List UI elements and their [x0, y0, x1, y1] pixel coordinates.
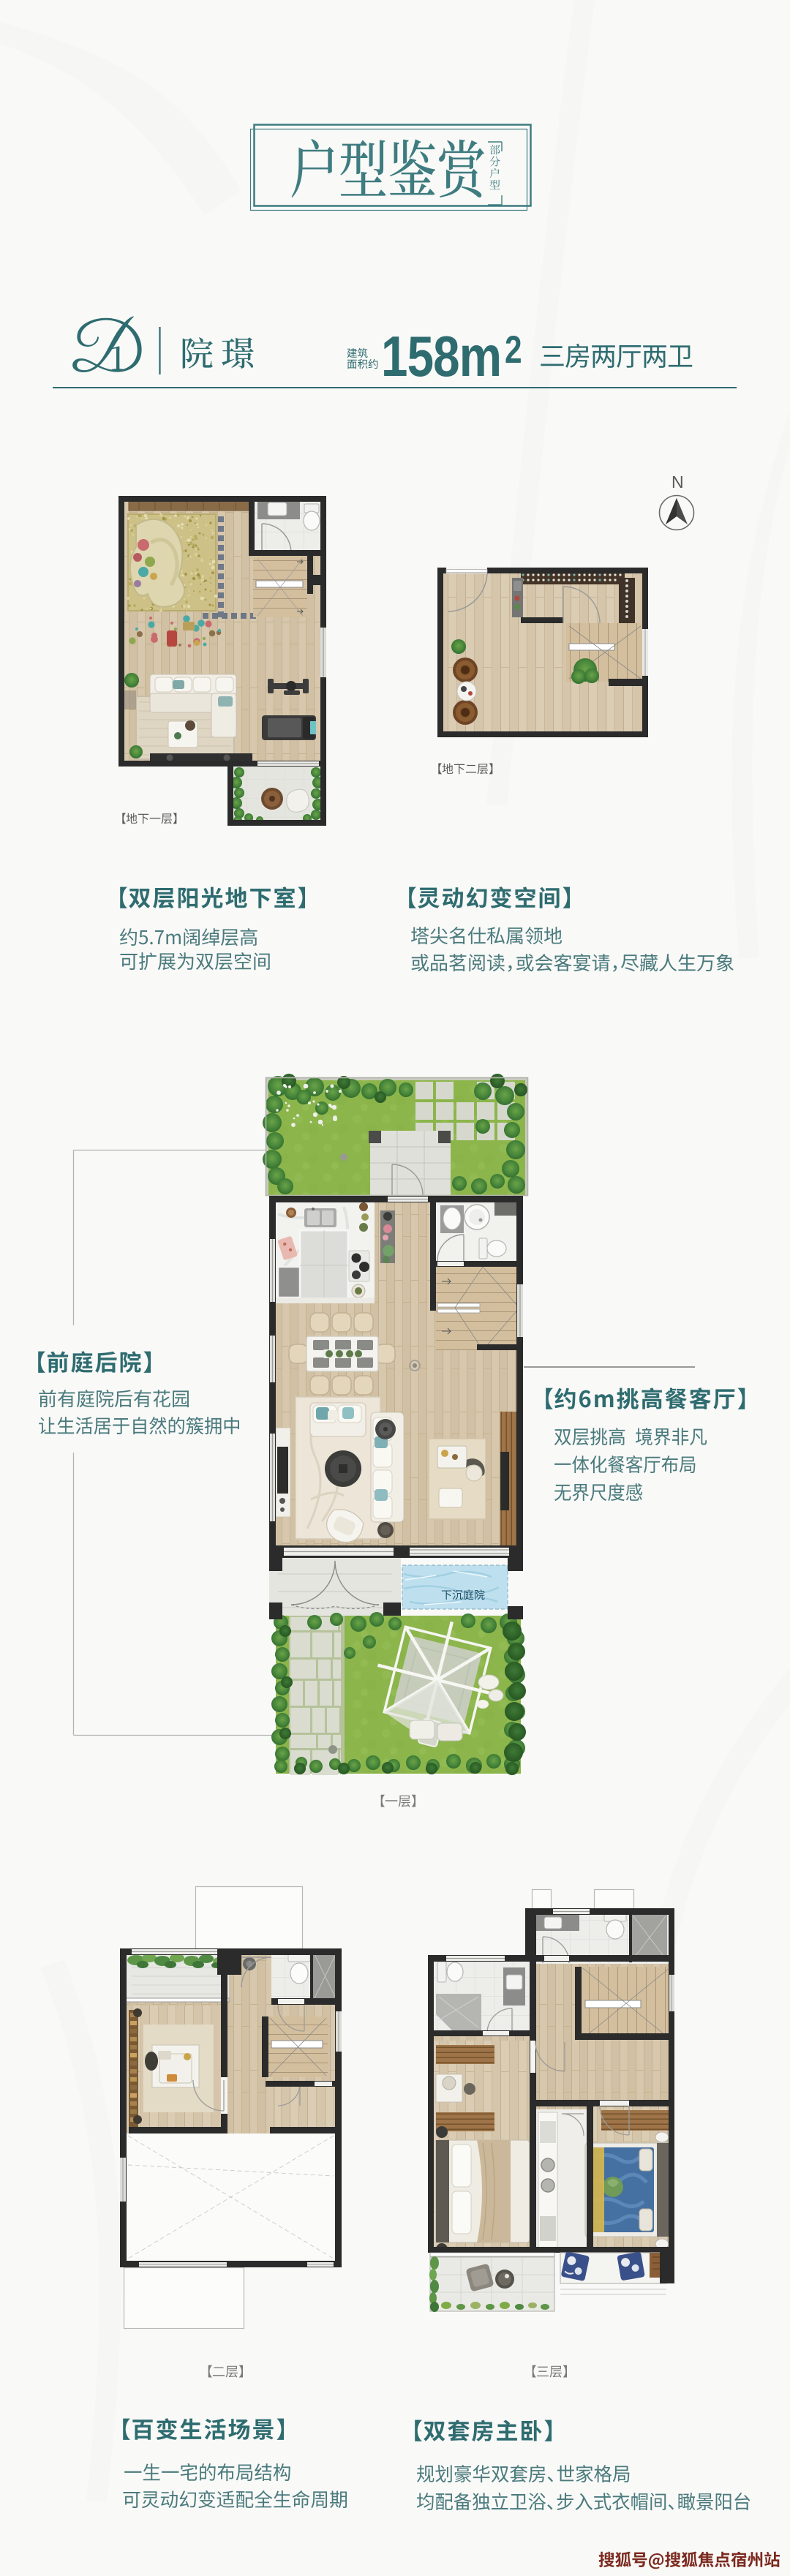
svg-text:158m: 158m	[381, 325, 501, 389]
svg-text:2: 2	[505, 329, 522, 372]
svg-text:N: N	[671, 472, 684, 492]
